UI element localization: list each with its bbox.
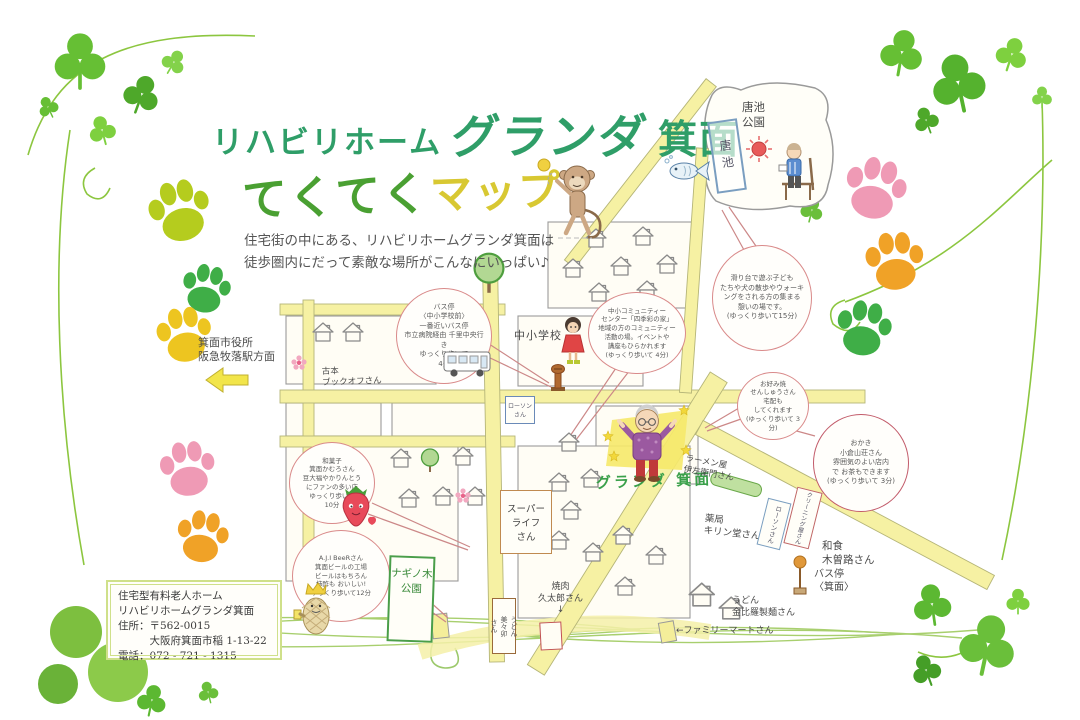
label-karaike-park: 唐池 公園 [742, 100, 765, 130]
label-yakiniku-kyutaro: 焼肉 久太郎さん ↓ [538, 582, 583, 617]
strawberry-character-icon [334, 484, 378, 530]
beer-hop-king-icon [292, 580, 340, 638]
title-prefix: リハビリホーム [212, 117, 442, 162]
direction-arrow-icon [204, 366, 250, 394]
bubble-okaki-ogurasanso: おかき 小倉山荘さん 雰囲気のよい店内 で お茶もできます (ゆっくり歩いて 3… [813, 414, 909, 512]
facility-info-box: 住宅型有料老人ホーム リハビリホームグランダ箕面 住所：〒562-0015 大阪… [106, 580, 282, 660]
label-familymart: ←ファミリーマートさん [676, 626, 774, 638]
label-lawson-center: ローソン さん [505, 396, 535, 424]
bubble-karaike-park: 滑り台で遊ぶ子ども たちや犬の散歩やウォーキ ングをされる方の集まる 憩いの場で… [712, 245, 812, 351]
bus-icon [442, 348, 496, 380]
bubble-community-center: 中小コミュニティー センター「四季彩の家」 地域の方のコミュニティー 活動の場。… [588, 292, 686, 374]
label-bookoff: 古本 ブックオフさん [322, 365, 382, 389]
clover-cluster-bottom-right [907, 582, 1029, 691]
label-naginoki-park: ナギノ木 公園 [387, 555, 436, 643]
info-line-2: リハビリホームグランダ箕面 [118, 604, 280, 619]
subtitle: 住宅街の中にある、リハビリホームグランダ箕面は 徒歩圏内にだって素敵な場所がこん… [244, 231, 554, 274]
tekuteku-map-logo: てくてく マップ [241, 152, 563, 228]
granda-elderly-mascot-icon [600, 398, 692, 488]
bubble-okonomiyaki-senshu: お好み焼 せんしゅうさん 宅配も してくれます (ゆっくり歩いて 3分) [737, 372, 809, 440]
label-udon-mimiu: うどん 美々卯 さん [492, 598, 516, 654]
info-line-3: 住所：〒562-0015 [118, 619, 280, 634]
post-box-icon [547, 360, 569, 394]
label-bus-stop-minoh: バス停 〈箕面〉 [814, 568, 854, 594]
tekuteku-map-page: リハビリホーム グランダ 箕面 てくてく マップ 住宅街の中にある、リハビリホー… [0, 0, 1080, 720]
sun-icon [744, 134, 774, 164]
info-line-4: 大阪府箕面市稲 1-13-22 [118, 634, 280, 649]
label-city-hall-direction: 箕面市役所 阪急牧落駅方面 [198, 336, 275, 365]
man-on-bench-icon [774, 140, 820, 206]
yakiniku-kyutaro-building [539, 621, 562, 650]
clover-cluster-top-left [35, 33, 190, 148]
label-kisoji: 和食 木曽路さん [822, 540, 875, 567]
label-konpira-seimen: うどん 金比羅製麺さん [732, 596, 795, 619]
bus-stop-sign-icon [790, 554, 810, 596]
label-super-life: スーパー ライフ さん [500, 490, 552, 554]
girl-character-icon [556, 316, 590, 366]
info-line-5: 電話：072 - 721 - 1315 [118, 649, 280, 664]
label-school: 中小学校 [514, 329, 562, 343]
monkey-character-icon [530, 156, 608, 244]
logo-tekuteku: てくてく [241, 157, 431, 229]
info-line-1: 住宅型有料老人ホーム [118, 589, 280, 604]
fish-icon [662, 154, 712, 186]
